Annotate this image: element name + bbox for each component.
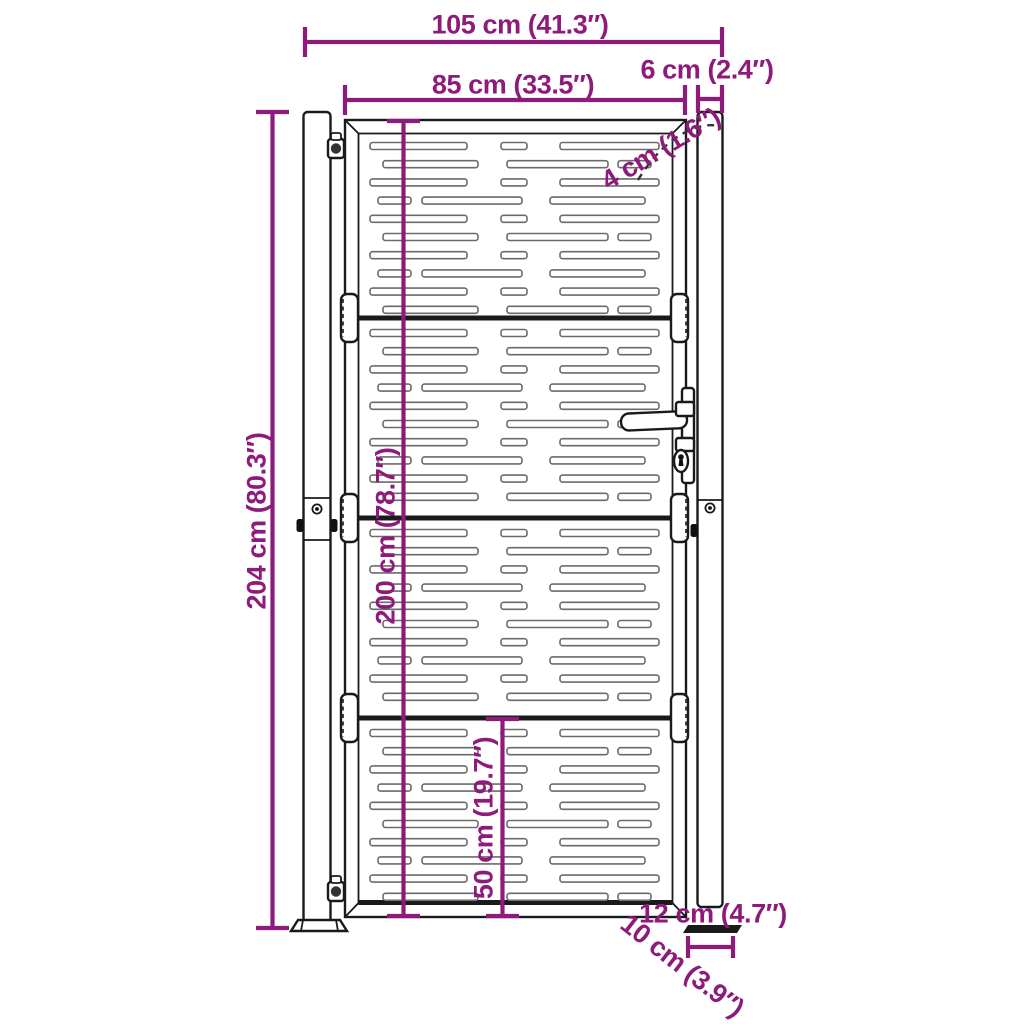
dim-overall-width-label: 105 cm (41.3″): [432, 12, 609, 39]
gate-slat: [550, 784, 645, 791]
gate-slat: [618, 821, 651, 828]
gate-slat: [422, 384, 522, 391]
gate-slat: [618, 548, 651, 555]
gate-slat: [507, 693, 608, 700]
gate-slat: [501, 475, 527, 482]
gate-slat: [370, 179, 467, 186]
gate-slat: [501, 766, 527, 773]
gate-slat: [383, 306, 478, 313]
gate-slat: [550, 457, 645, 464]
diagram-canvas: 105 cm (41.3″) 85 cm (33.5″) 6 cm (2.4″)…: [0, 0, 1024, 1024]
gate-slat: [618, 493, 651, 500]
left-post-lug: [297, 519, 304, 532]
gate-slat: [507, 306, 608, 313]
dim-gate-height-label: 200 cm (78.7″): [373, 448, 400, 625]
gate-slat: [560, 402, 659, 409]
gate-slat: [618, 621, 651, 628]
gate-slat: [422, 584, 522, 591]
gate-slat: [422, 657, 522, 664]
left-post: [304, 112, 331, 922]
gate-slat: [501, 439, 527, 446]
gate-slat: [370, 143, 467, 150]
lock-bracket: [676, 438, 694, 451]
gate-slat: [383, 748, 478, 755]
gate-slat: [507, 893, 608, 900]
gate-slat: [378, 197, 411, 204]
gate-slat: [560, 602, 659, 609]
dim-base-plate-depth: [688, 936, 733, 958]
gate-slat: [618, 306, 651, 313]
gate-slat: [378, 270, 411, 277]
gate-slat: [501, 179, 527, 186]
gate-slat: [550, 197, 645, 204]
gate-slat: [501, 288, 527, 295]
gate-slat: [383, 421, 478, 428]
gate-slat: [507, 161, 608, 168]
gate-slat: [501, 143, 527, 150]
gate-slat: [501, 566, 527, 573]
gate-slat: [618, 748, 651, 755]
gate-slat: [383, 234, 478, 241]
gate-slat: [550, 270, 645, 277]
gate-slat: [507, 493, 608, 500]
gate-slat: [370, 215, 467, 222]
gate-slat: [383, 893, 478, 900]
dim-overall-height-label: 204 cm (80.3″): [244, 433, 271, 610]
gate-slat: [501, 730, 527, 737]
gate-slat: [560, 215, 659, 222]
gate-slat: [507, 348, 608, 355]
gate-slat: [560, 439, 659, 446]
gate-slat: [378, 384, 411, 391]
gate-slat: [378, 784, 411, 791]
gate-slat: [507, 748, 608, 755]
gate-slat: [370, 839, 467, 846]
gate-slat: [370, 252, 467, 259]
dim-base-plate-length-label: 12 cm (4.7″): [639, 901, 787, 928]
gate-slat: [501, 602, 527, 609]
gate-slat: [507, 421, 608, 428]
hinge-bolt-bottom: [328, 876, 344, 901]
gate-slat: [560, 252, 659, 259]
gate-slat: [370, 288, 467, 295]
gate-slat: [560, 766, 659, 773]
gate-slat: [550, 857, 645, 864]
gate-slat: [507, 548, 608, 555]
gate-structure: [291, 112, 742, 933]
gate-slat: [560, 366, 659, 373]
hinge-bolt-top: [328, 133, 344, 158]
gate-slat: [560, 530, 659, 537]
gate-slat: [501, 675, 527, 682]
gate-slat: [501, 639, 527, 646]
gate-slat: [370, 675, 467, 682]
gate-slat: [560, 566, 659, 573]
gate-slat: [383, 161, 478, 168]
gate-slat: [560, 875, 659, 882]
gate-slat: [560, 839, 659, 846]
gate-slat: [501, 875, 527, 882]
gate-slat: [383, 693, 478, 700]
gate-slat: [370, 875, 467, 882]
gate-slat: [550, 584, 645, 591]
gate-slat: [422, 270, 522, 277]
gate-slat: [422, 197, 522, 204]
gate-slat: [370, 366, 467, 373]
gate-slat: [507, 821, 608, 828]
gate-slat: [501, 330, 527, 337]
gate-slat: [501, 802, 527, 809]
gate-slat: [501, 839, 527, 846]
gate-slat: [370, 766, 467, 773]
gate-slat: [422, 457, 522, 464]
gate-slat: [560, 675, 659, 682]
gate-diagram: [0, 0, 1024, 1024]
gate-slat: [501, 530, 527, 537]
gate-slat: [507, 234, 608, 241]
handle-bracket: [676, 402, 694, 416]
gate-slat: [618, 348, 651, 355]
gate-slat: [560, 730, 659, 737]
gate-slat: [501, 252, 527, 259]
gate-slat: [618, 693, 651, 700]
gate-slat: [501, 402, 527, 409]
gate-slat: [550, 657, 645, 664]
gate-slat: [560, 330, 659, 337]
gate-slat: [378, 657, 411, 664]
gate-slat: [383, 348, 478, 355]
dim-gate-width-label: 85 cm (33.5″): [432, 72, 594, 99]
gate-slat: [560, 288, 659, 295]
gate-slat: [370, 330, 467, 337]
screw-dot: [708, 506, 712, 510]
gate-slat: [501, 215, 527, 222]
gate-slat: [560, 475, 659, 482]
gate-slat: [501, 366, 527, 373]
gate-slat: [378, 857, 411, 864]
screw-dot: [315, 507, 319, 511]
right-post-lug: [691, 524, 698, 537]
gate-slat: [560, 639, 659, 646]
dim-post-width-label: 6 cm (2.4″): [640, 57, 773, 84]
gate-slat: [370, 402, 467, 409]
gate-slat: [618, 234, 651, 241]
gate-slat: [370, 439, 467, 446]
gate-slat: [550, 384, 645, 391]
gate-slat: [383, 821, 478, 828]
dim-bottom-panel-height-label: 50 cm (19.7″): [471, 737, 498, 899]
left-post-lug: [331, 519, 338, 532]
gate-slat: [370, 802, 467, 809]
gate-slat: [560, 802, 659, 809]
gate-slat: [370, 639, 467, 646]
gate-slat: [370, 730, 467, 737]
gate-slat: [507, 621, 608, 628]
